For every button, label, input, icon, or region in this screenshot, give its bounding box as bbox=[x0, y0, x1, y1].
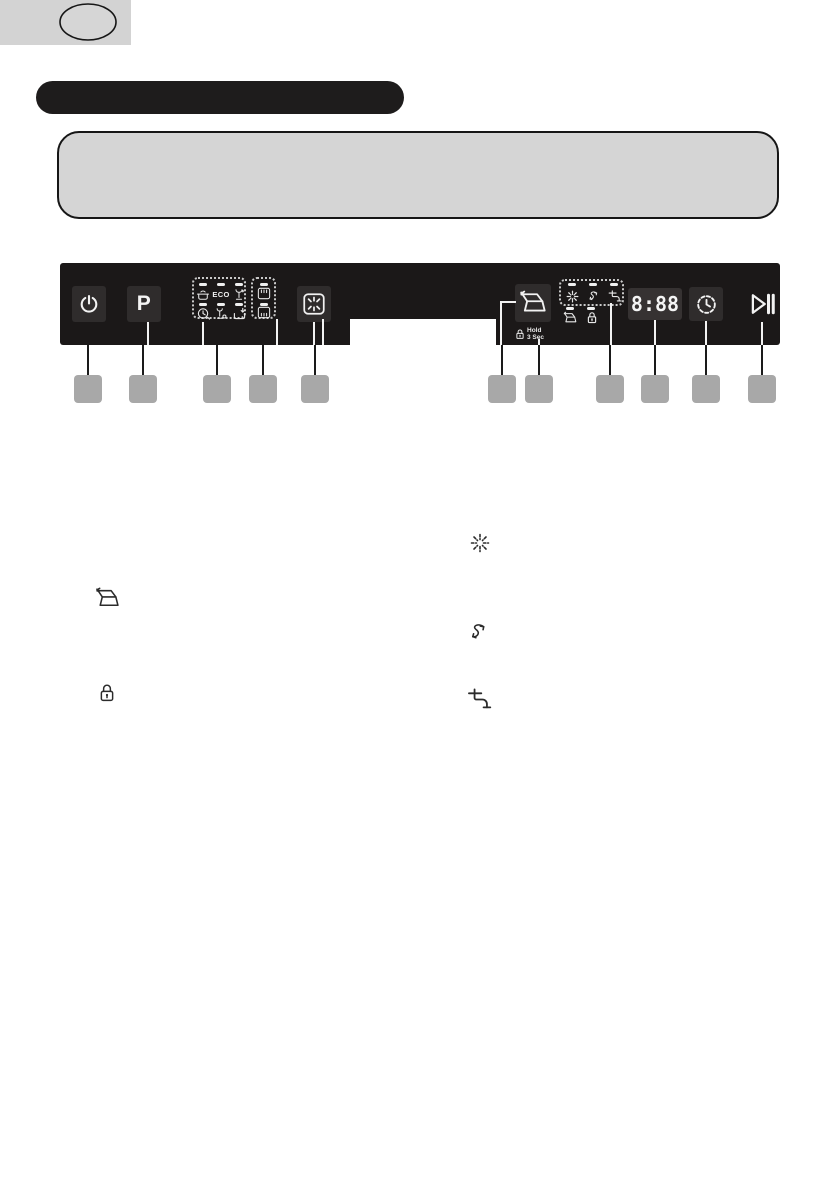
eco-program-label: ECO bbox=[213, 288, 229, 301]
callout-line bbox=[322, 319, 324, 345]
rapid-glass-drop-icon bbox=[213, 307, 229, 320]
warning-indicator-group bbox=[559, 279, 624, 306]
callout-line bbox=[87, 345, 89, 375]
program-led bbox=[217, 303, 225, 306]
time-display-value: 8:88 bbox=[631, 292, 679, 316]
hold-3sec-text: Hold 3 Sec bbox=[527, 327, 544, 341]
callout-line bbox=[500, 301, 516, 303]
callout-line bbox=[142, 345, 144, 375]
program-led bbox=[199, 283, 207, 286]
program-led bbox=[235, 303, 243, 306]
legend-water-tap-icon bbox=[465, 686, 492, 713]
program-led bbox=[199, 303, 207, 306]
page-badge bbox=[0, 0, 131, 45]
half-load-indicator-group bbox=[251, 277, 276, 319]
callout-square-10 bbox=[692, 375, 720, 403]
callout-line bbox=[761, 322, 763, 345]
program-led bbox=[235, 283, 243, 286]
water-tap-icon bbox=[605, 288, 623, 305]
callout-line bbox=[314, 345, 316, 375]
extra-dry-icon bbox=[301, 291, 327, 317]
callout-line bbox=[654, 320, 656, 345]
power-button[interactable] bbox=[72, 286, 106, 322]
glass-wash-icon bbox=[231, 288, 247, 301]
rack-led bbox=[260, 283, 268, 286]
rinse-aid-icon bbox=[563, 288, 581, 305]
power-icon bbox=[77, 292, 101, 316]
callout-square-6 bbox=[488, 375, 516, 403]
extra-dry-button[interactable] bbox=[297, 286, 331, 322]
callout-square-3 bbox=[203, 375, 231, 403]
auto-door-open-button[interactable] bbox=[515, 284, 551, 322]
callout-square-8 bbox=[596, 375, 624, 403]
callout-line bbox=[216, 345, 218, 375]
start-pause-icon bbox=[746, 289, 776, 319]
delay-start-button[interactable] bbox=[689, 287, 723, 321]
callout-line bbox=[705, 321, 707, 345]
section-title-bar bbox=[36, 81, 404, 114]
start-pause-button[interactable] bbox=[745, 285, 777, 322]
callout-line bbox=[761, 345, 763, 375]
control-panel: P ECO bbox=[60, 263, 780, 345]
callout-line bbox=[610, 303, 612, 345]
legend-rinse-aid-icon bbox=[468, 531, 492, 555]
callout-square-4 bbox=[249, 375, 277, 403]
door-open-indicator-icon bbox=[561, 310, 579, 325]
callout-square-2 bbox=[129, 375, 157, 403]
callout-line bbox=[202, 322, 204, 345]
auto-door-open-icon bbox=[519, 289, 547, 317]
lock-indicator-icon bbox=[583, 310, 601, 325]
program-indicator-group: ECO bbox=[192, 277, 246, 319]
legend-salt-refill-icon bbox=[466, 620, 491, 645]
callout-line bbox=[276, 319, 278, 345]
callout-square-7 bbox=[525, 375, 553, 403]
indicator-led bbox=[568, 283, 576, 286]
lock-icon bbox=[515, 328, 525, 340]
lower-rack-icon bbox=[256, 306, 272, 319]
program-button[interactable]: P bbox=[127, 286, 161, 322]
callout-line bbox=[313, 322, 315, 345]
panel-notch bbox=[350, 319, 496, 345]
soak-basket-icon bbox=[231, 307, 247, 320]
delay-timer-icon bbox=[694, 292, 719, 317]
info-box bbox=[57, 131, 779, 219]
quick-clock-icon bbox=[195, 307, 211, 320]
legend-auto-door-open-icon bbox=[95, 586, 120, 611]
intensive-pot-icon bbox=[195, 288, 211, 301]
callout-square-11 bbox=[748, 375, 776, 403]
page-badge-oval bbox=[60, 4, 116, 40]
callout-square-1 bbox=[74, 375, 102, 403]
callout-line bbox=[705, 345, 707, 375]
program-button-label: P bbox=[137, 292, 152, 316]
time-display: 8:88 bbox=[628, 288, 682, 320]
indicator-led bbox=[610, 283, 618, 286]
salt-refill-icon bbox=[584, 288, 602, 305]
callout-square-9 bbox=[641, 375, 669, 403]
indicator-led bbox=[589, 283, 597, 286]
legend-child-lock-icon bbox=[98, 678, 116, 707]
callout-line bbox=[654, 345, 656, 375]
callout-line bbox=[609, 345, 611, 375]
callout-line bbox=[501, 345, 503, 375]
callout-square-5 bbox=[301, 375, 329, 403]
program-led bbox=[217, 283, 225, 286]
upper-rack-icon bbox=[256, 287, 272, 300]
callout-line bbox=[147, 322, 149, 345]
callout-line bbox=[500, 301, 502, 345]
callout-line bbox=[262, 345, 264, 375]
callout-line bbox=[538, 345, 540, 375]
